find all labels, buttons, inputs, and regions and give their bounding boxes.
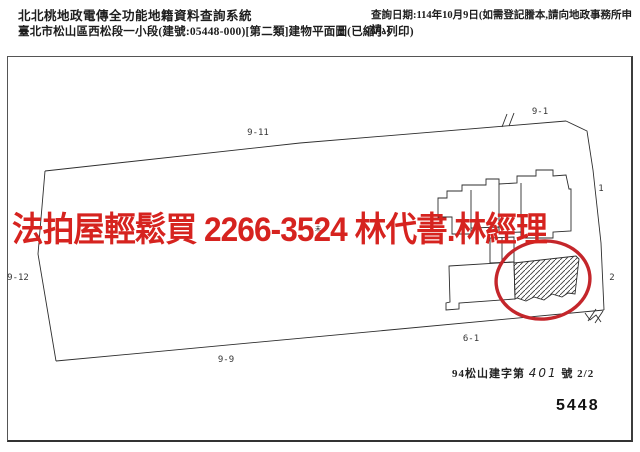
sheet-number: 5448 (556, 397, 600, 415)
permit-prefix: 94松山建字第 (452, 368, 525, 380)
query-date: 查詢日期:114年10月9日(如需登記謄本,請向地政事務所申請。) (371, 7, 640, 37)
foreclosure-ad-overlay: 法拍屋輕鬆買 2266-3524 林代書.林經理 (12, 202, 547, 251)
scanned-building-plan-page: { "header": { "system_title": "北北桃地政電傳全功… (0, 0, 640, 452)
building-permit-number: 94松山建字第 401 號 2/2 (452, 365, 594, 381)
permit-number-handwritten: 401 (529, 366, 558, 380)
system-title: 北北桃地政電傳全功能地籍資料查詢系統 (18, 5, 252, 24)
document-title: 臺北市松山區西松段一小段(建號:05448-000)[第二類]建物平面圖(已縮小… (18, 23, 414, 39)
permit-suffix: 號 2/2 (561, 368, 594, 380)
